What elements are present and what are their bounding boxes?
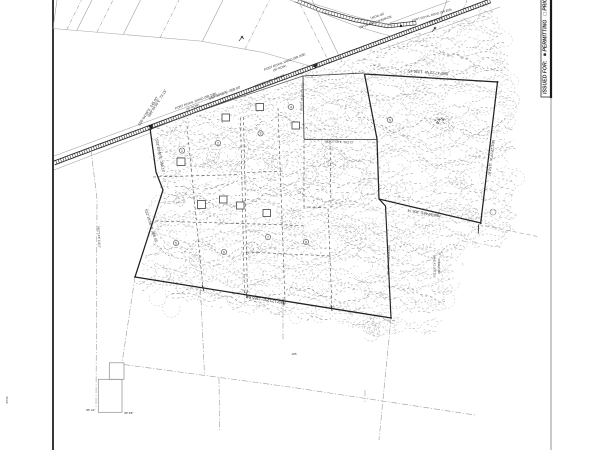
svg-text:IPF 1/2": IPF 1/2" xyxy=(86,408,95,412)
svg-text:SCAN: SCAN xyxy=(5,396,9,403)
svg-text:1: 1 xyxy=(181,149,183,153)
svg-text:9: 9 xyxy=(389,118,391,122)
svg-text:IPF 5/8": IPF 5/8" xyxy=(124,411,133,415)
svg-text:2: 2 xyxy=(217,141,219,145)
svg-text:7: 7 xyxy=(267,235,269,239)
svg-text:ISSUED FOR: ■ PERMITTING □: ISSUED FOR: ■ PERMITTING □ PRICING xyxy=(543,0,549,94)
svg-text:8: 8 xyxy=(305,240,307,244)
svg-text:ZONED RA: ZONED RA xyxy=(437,258,441,274)
svg-text:105: 105 xyxy=(291,352,296,356)
svg-text:6: 6 xyxy=(223,250,225,254)
svg-text:MAP 47 LOT 23: MAP 47 LOT 23 xyxy=(433,255,437,277)
svg-text:3: 3 xyxy=(260,132,262,136)
svg-text:5: 5 xyxy=(175,241,177,245)
svg-text:4: 4 xyxy=(290,105,292,109)
